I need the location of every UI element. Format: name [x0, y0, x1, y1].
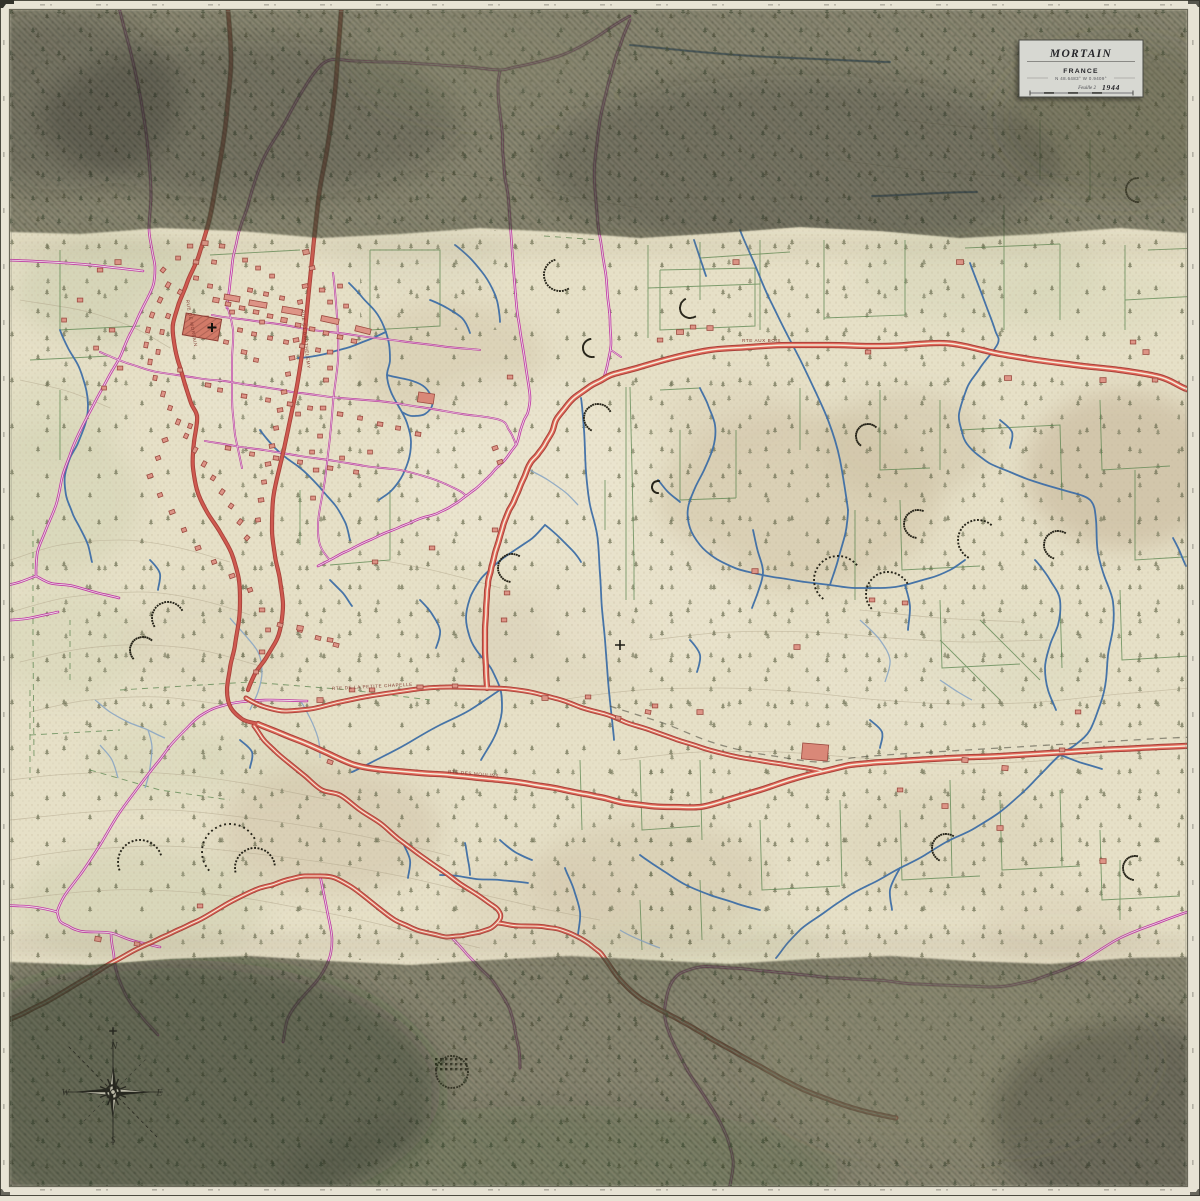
svg-text:N 48.6483° W 0.9409°: N 48.6483° W 0.9409°: [1055, 76, 1107, 81]
svg-text:Feuille 2: Feuille 2: [1077, 86, 1096, 91]
svg-text:1944: 1944: [1102, 83, 1120, 92]
svg-text:W: W: [61, 1087, 70, 1098]
svg-text:S: S: [111, 1135, 116, 1146]
svg-text:FRANCE: FRANCE: [1063, 68, 1099, 75]
svg-text:RTE AUX BOIS: RTE AUX BOIS: [742, 338, 781, 343]
svg-text:E: E: [155, 1087, 162, 1098]
svg-text:N: N: [110, 1041, 119, 1052]
svg-text:MORTAIN: MORTAIN: [1049, 48, 1112, 60]
